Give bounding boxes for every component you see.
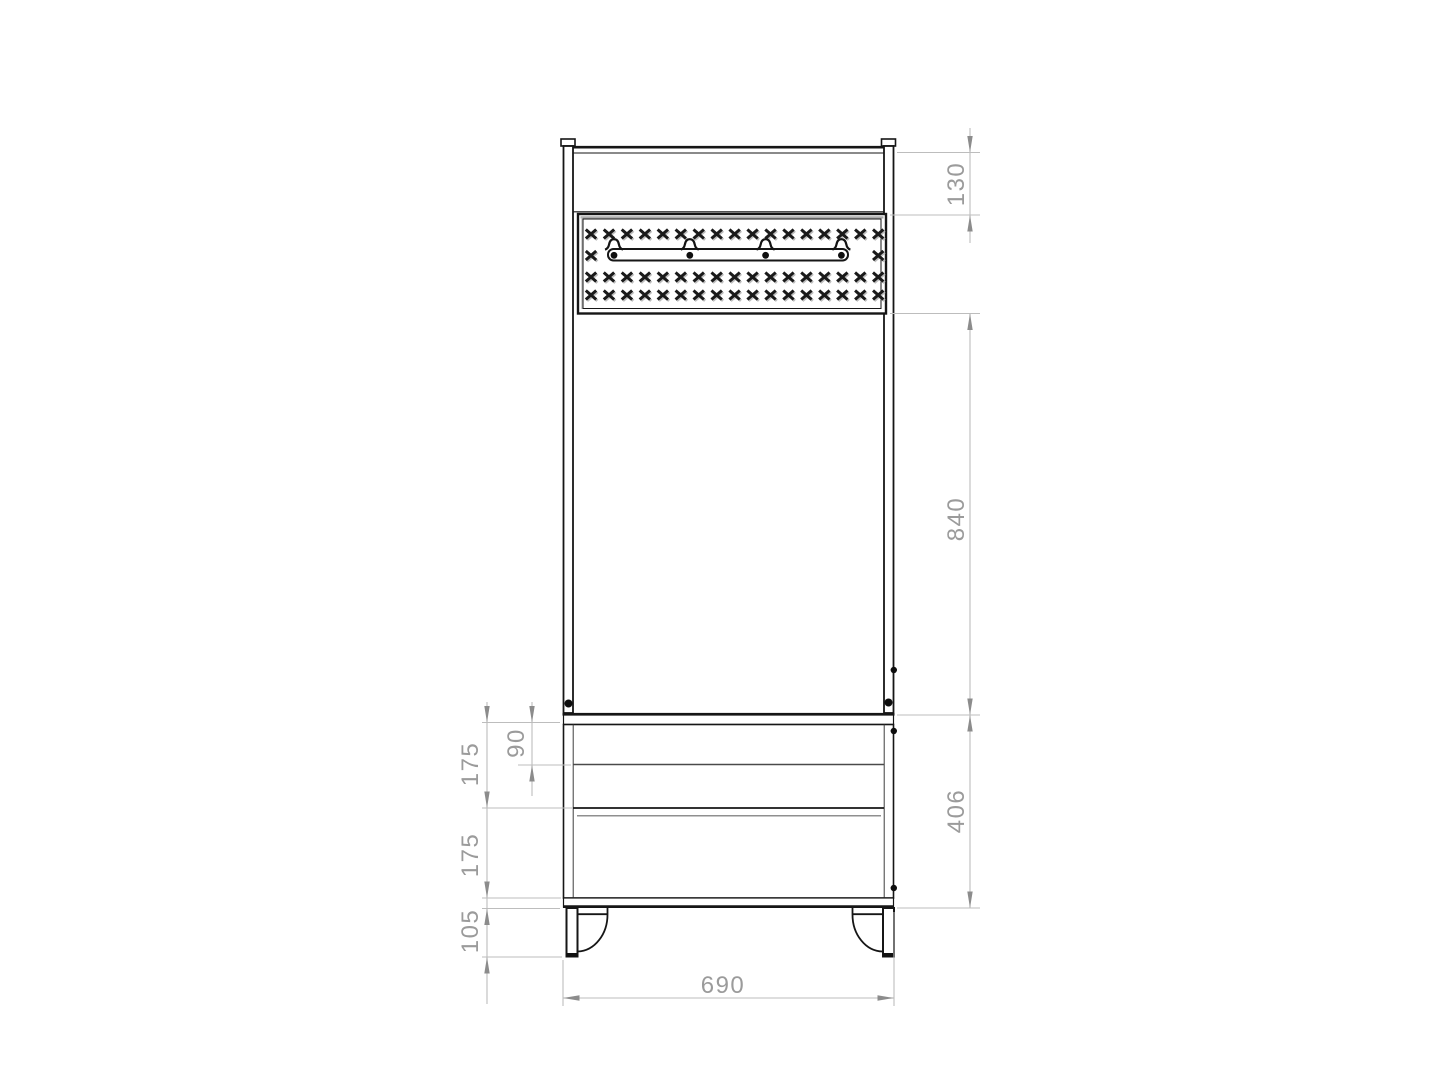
dimension-label-90: 90	[504, 698, 530, 788]
hook-screw-dot	[686, 252, 693, 259]
cam-dot-edge	[891, 885, 897, 891]
cam-dot	[565, 700, 573, 708]
hook-screw-dot	[838, 252, 845, 259]
left-leg-bracket	[578, 908, 608, 952]
technical-drawing-canvas: 130 840 406 175 90 175 105 690	[0, 0, 1440, 1080]
right-leg-bracket	[852, 908, 883, 952]
right-post-cap	[882, 139, 896, 146]
dimension-label-105: 105	[458, 886, 484, 976]
wardrobe-front-elevation	[561, 139, 897, 957]
right-leg	[883, 908, 894, 957]
left-post-cap	[561, 139, 575, 146]
hook-screw-dot	[611, 252, 618, 259]
cam-dot-edge	[891, 728, 897, 734]
furniture-line-art	[0, 0, 1440, 1080]
left-post	[564, 146, 574, 713]
hook-rail	[608, 249, 848, 261]
cam-dot-edge	[891, 667, 897, 673]
right-leg-foot	[883, 953, 894, 957]
dimension-label-175-upper: 175	[458, 719, 484, 809]
base-cabinet	[564, 725, 894, 899]
cam-dot	[885, 699, 893, 707]
dimension-label-840: 840	[944, 474, 970, 564]
dimension-label-130: 130	[944, 139, 970, 229]
hook-screw-dot	[762, 252, 769, 259]
left-leg	[567, 908, 578, 957]
dimension-label-406: 406	[944, 766, 970, 856]
left-leg-foot	[567, 953, 578, 957]
dimension-label-690: 690	[678, 973, 768, 999]
